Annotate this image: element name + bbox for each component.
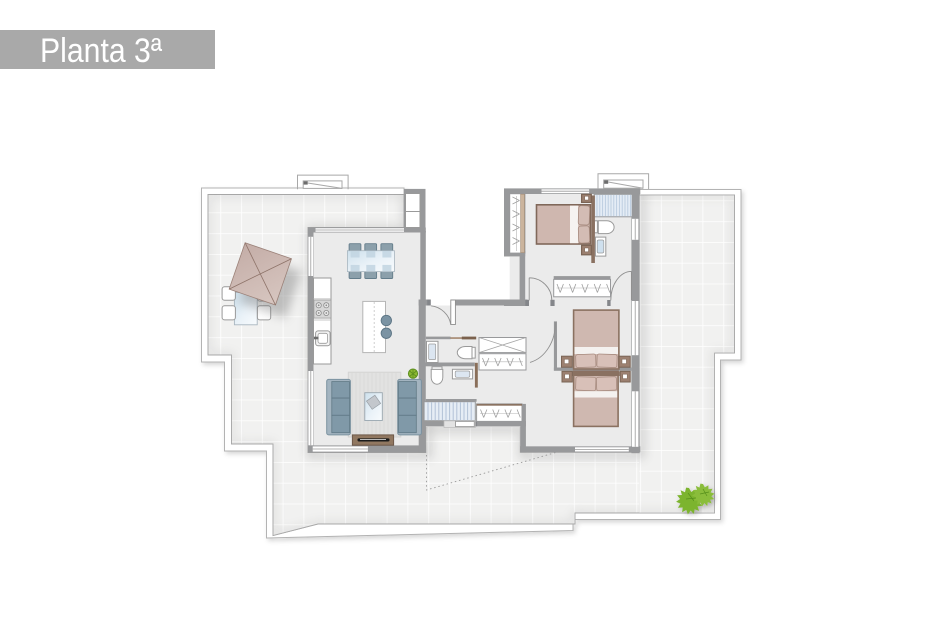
- svg-text:Planta 3ª: Planta 3ª: [40, 32, 162, 70]
